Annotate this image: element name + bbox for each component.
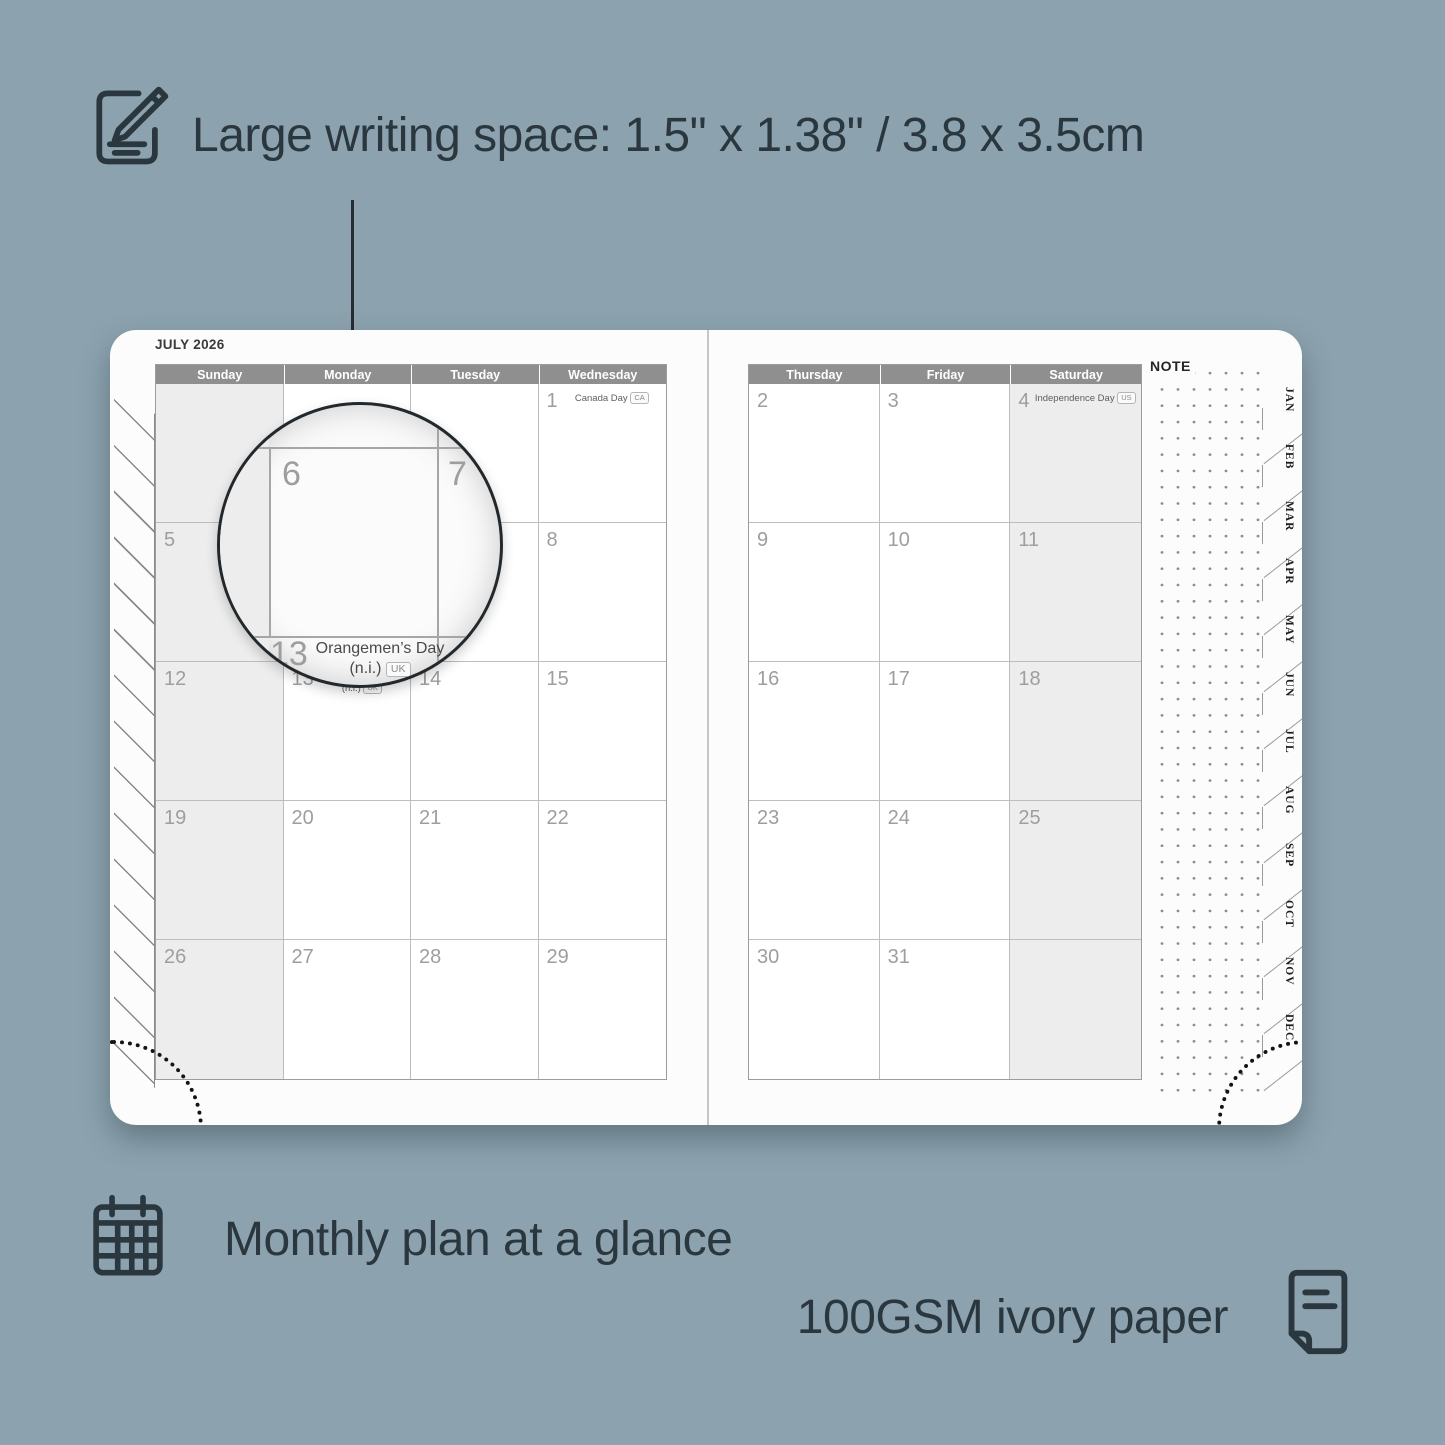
calendar-cell-10: 10 xyxy=(880,523,1011,662)
product-infographic: Large writing space: 1.5" x 1.38" / 3.8 … xyxy=(0,0,1445,1445)
magnified-grid-line xyxy=(220,447,500,449)
country-badge: CA xyxy=(630,392,648,404)
feature-monthly-plan-label: Monthly plan at a glance xyxy=(224,1212,732,1267)
date-number: 16 xyxy=(749,662,779,689)
month-tab-feb: FEB xyxy=(1262,442,1302,499)
calendar-cell-3: 3 xyxy=(880,384,1011,523)
date-number: 30 xyxy=(749,940,779,967)
date-number: 17 xyxy=(880,662,910,689)
date-number: 18 xyxy=(1010,662,1040,689)
calendar-cell-17: 17 xyxy=(880,662,1011,801)
calendar-cell-2: 2 xyxy=(749,384,880,523)
calendar-cell-22: 22 xyxy=(539,801,667,940)
date-number: 31 xyxy=(880,940,910,967)
date-number: 23 xyxy=(749,801,779,828)
page-edge-hatching xyxy=(114,388,155,1088)
month-tab-sep: SEP xyxy=(1262,841,1302,898)
date-number: 24 xyxy=(880,801,910,828)
calendar-cell-23: 23 xyxy=(749,801,880,940)
date-number: 29 xyxy=(539,940,569,967)
date-number: 21 xyxy=(411,801,441,828)
calendar-cell-26: 26 xyxy=(156,940,284,1079)
calendar-cell-1: 1Canada Day CA xyxy=(539,384,667,523)
magnified-grid-line xyxy=(269,447,271,636)
calendar-cell-15: 15 xyxy=(539,662,667,801)
day-header-wednesday: Wednesday xyxy=(539,365,667,384)
magnified-date-6: 6 xyxy=(282,455,301,494)
calendar-cell-31: 31 xyxy=(880,940,1011,1079)
month-tab-aug: AUG xyxy=(1262,784,1302,841)
planner-spread: JULY 2026 SundayMondayTuesdayWednesday1C… xyxy=(110,330,1302,1125)
month-tab-strip: JANFEBMARAPRMAYJUNJULAUGSEPOCTNOVDEC xyxy=(1262,385,1302,1075)
date-number: 4 xyxy=(1010,384,1029,411)
calendar-cell-20: 20 xyxy=(284,801,412,940)
paper-icon xyxy=(1270,1262,1364,1362)
date-number: 2 xyxy=(749,384,768,411)
calendar-cell-27: 27 xyxy=(284,940,412,1079)
date-number: 27 xyxy=(284,940,314,967)
day-header-saturday: Saturday xyxy=(1010,365,1141,384)
date-number: 20 xyxy=(284,801,314,828)
calendar-cell-24: 24 xyxy=(880,801,1011,940)
calendar-cell-11: 11 xyxy=(1010,523,1141,662)
date-number: 22 xyxy=(539,801,569,828)
calendar-cell-9: 9 xyxy=(749,523,880,662)
calendar-cell-28: 28 xyxy=(411,940,539,1079)
calendar-cell-21: 21 xyxy=(411,801,539,940)
month-tab-jan: JAN xyxy=(1262,385,1302,442)
date-number: 15 xyxy=(539,662,569,689)
calendar-cell-30: 30 xyxy=(749,940,880,1079)
date-number: 12 xyxy=(156,662,186,689)
date-number: 25 xyxy=(1010,801,1040,828)
date-number: 28 xyxy=(411,940,441,967)
day-header-tuesday: Tuesday xyxy=(411,365,539,384)
month-tab-oct: OCT xyxy=(1262,898,1302,955)
calendar-cell-16: 16 xyxy=(749,662,880,801)
feature-writing-space-label: Large writing space: 1.5" x 1.38" / 3.8 … xyxy=(192,108,1144,163)
calendar-cell-8: 8 xyxy=(539,523,667,662)
country-badge: US xyxy=(1117,392,1135,404)
month-tab-nov: NOV xyxy=(1262,955,1302,1012)
date-number: 11 xyxy=(1010,523,1039,550)
magnified-date-7: 7 xyxy=(448,455,467,494)
calendar-cell-empty xyxy=(1010,940,1141,1079)
day-header-monday: Monday xyxy=(284,365,412,384)
magnified-holiday-label: Orangemen’s Day (n.i.) UK xyxy=(298,639,462,679)
date-number: 9 xyxy=(749,523,768,550)
calendar-grid-right: ThursdayFridaySaturday234Independence Da… xyxy=(748,364,1142,1080)
holiday-label: Canada Day CA xyxy=(558,384,666,405)
calendar-cell-14: 14 xyxy=(411,662,539,801)
month-title: JULY 2026 xyxy=(155,337,225,352)
calendar-grid-icon xyxy=(83,1192,173,1282)
magnified-grid-line xyxy=(220,636,500,638)
calendar-cell-4: 4Independence Day US xyxy=(1010,384,1141,523)
month-tab-apr: APR xyxy=(1262,556,1302,613)
date-number: 19 xyxy=(156,801,186,828)
note-label: NOTE xyxy=(1150,358,1195,376)
day-header-thursday: Thursday xyxy=(749,365,880,384)
date-number: 5 xyxy=(156,523,175,550)
calendar-cell-29: 29 xyxy=(539,940,667,1079)
month-tab-jul: JUL xyxy=(1262,727,1302,784)
country-badge: UK xyxy=(386,662,411,678)
magnifier-circle: 6 7 13 Orangemen’s Day (n.i.) UK xyxy=(217,402,503,688)
spread-spine-divider xyxy=(707,330,709,1125)
holiday-label: Independence Day US xyxy=(1029,384,1141,405)
calendar-cell-18: 18 xyxy=(1010,662,1141,801)
feature-paper-label: 100GSM ivory paper xyxy=(797,1290,1228,1345)
date-number: 3 xyxy=(880,384,899,411)
date-number: 1 xyxy=(539,384,558,411)
calendar-cell-19: 19 xyxy=(156,801,284,940)
month-tab-may: MAY xyxy=(1262,613,1302,670)
date-number: 8 xyxy=(539,523,558,550)
date-number: 26 xyxy=(156,940,186,967)
month-tab-mar: MAR xyxy=(1262,499,1302,556)
dot-grid: NOTE xyxy=(1148,358,1268,1096)
pencil-pad-icon xyxy=(83,80,175,172)
month-tab-jun: JUN xyxy=(1262,670,1302,727)
day-header-sunday: Sunday xyxy=(156,365,284,384)
day-header-friday: Friday xyxy=(880,365,1011,384)
date-number: 10 xyxy=(880,523,910,550)
calendar-cell-25: 25 xyxy=(1010,801,1141,940)
